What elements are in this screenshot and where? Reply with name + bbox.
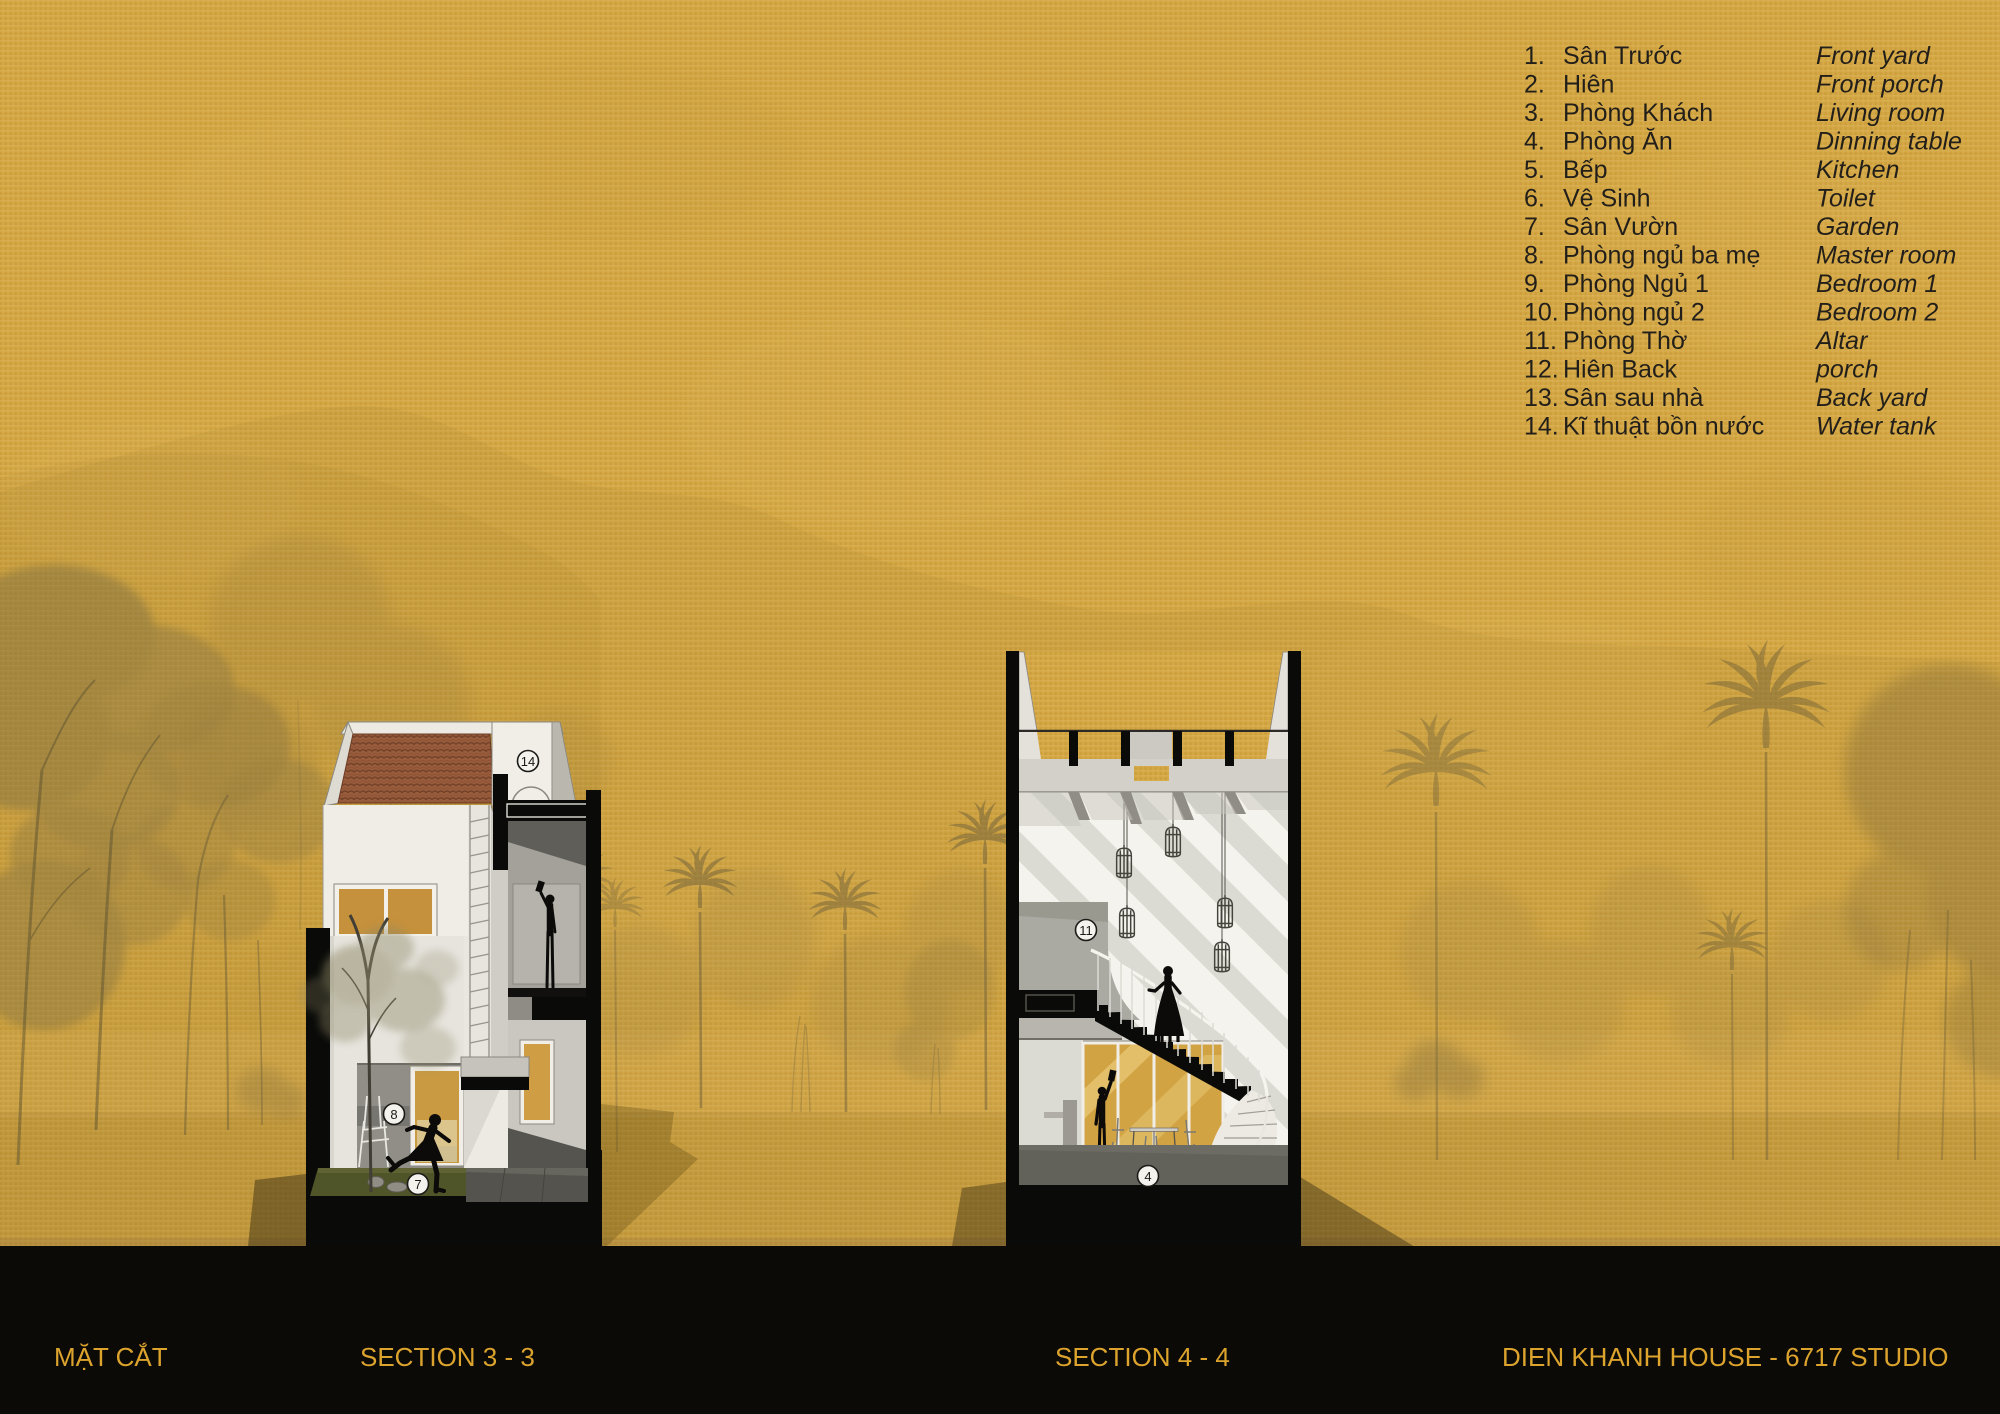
svg-text:7: 7 — [414, 1177, 421, 1192]
svg-text:Altar: Altar — [1814, 327, 1869, 355]
svg-text:Sân Vườn: Sân Vườn — [1563, 213, 1678, 241]
svg-text:Toilet: Toilet — [1816, 185, 1876, 213]
svg-text:Sân sau nhà: Sân sau nhà — [1563, 384, 1703, 412]
svg-text:Dinning table: Dinning table — [1816, 128, 1962, 156]
svg-text:13.: 13. — [1524, 384, 1559, 412]
svg-text:Bếp: Bếp — [1563, 156, 1607, 184]
svg-text:Phòng ngủ 2: Phòng ngủ 2 — [1563, 299, 1705, 327]
svg-text:SECTION 3 - 3: SECTION 3 - 3 — [360, 1342, 535, 1372]
svg-text:Phòng ngủ ba mẹ: Phòng ngủ ba mẹ — [1563, 242, 1760, 270]
svg-text:SECTION 4 - 4: SECTION 4 - 4 — [1055, 1342, 1230, 1372]
svg-text:porch: porch — [1815, 356, 1879, 384]
svg-text:7.: 7. — [1524, 213, 1545, 241]
svg-text:Hiên Back: Hiên Back — [1563, 356, 1677, 384]
svg-text:Bedroom 1: Bedroom 1 — [1816, 270, 1938, 298]
svg-text:Phòng Ngủ 1: Phòng Ngủ 1 — [1563, 270, 1709, 298]
svg-text:Kĩ thuật bồn nước: Kĩ thuật bồn nước — [1563, 413, 1764, 441]
svg-text:11: 11 — [1079, 923, 1093, 938]
svg-text:Kitchen: Kitchen — [1816, 156, 1899, 184]
svg-text:Water tank: Water tank — [1816, 413, 1938, 441]
svg-text:3.: 3. — [1524, 99, 1545, 127]
svg-text:4.: 4. — [1524, 128, 1545, 156]
svg-text:6.: 6. — [1524, 185, 1545, 213]
svg-text:4: 4 — [1144, 1169, 1151, 1184]
svg-text:11.: 11. — [1524, 327, 1557, 355]
svg-text:10.: 10. — [1524, 299, 1559, 327]
svg-text:Master room: Master room — [1816, 242, 1956, 270]
svg-text:DIEN KHANH HOUSE - 6717 STUDIO: DIEN KHANH HOUSE - 6717 STUDIO — [1502, 1342, 1948, 1372]
svg-text:14: 14 — [521, 754, 535, 769]
svg-text:Front yard: Front yard — [1816, 42, 1931, 70]
svg-text:Bedroom 2: Bedroom 2 — [1816, 299, 1938, 327]
svg-text:12.: 12. — [1524, 356, 1559, 384]
svg-text:9.: 9. — [1524, 270, 1545, 298]
svg-text:Phòng Ăn: Phòng Ăn — [1563, 127, 1673, 156]
svg-text:Back yard: Back yard — [1816, 384, 1928, 412]
svg-text:2.: 2. — [1524, 71, 1545, 99]
svg-text:Front porch: Front porch — [1816, 71, 1944, 99]
svg-text:5.: 5. — [1524, 156, 1545, 184]
svg-text:Hiên: Hiên — [1563, 71, 1614, 99]
svg-text:Garden: Garden — [1816, 213, 1899, 241]
svg-text:Phòng Khách: Phòng Khách — [1563, 99, 1713, 127]
svg-text:8.: 8. — [1524, 242, 1545, 270]
svg-text:MẶT CẮT: MẶT CẮT — [54, 1342, 168, 1372]
svg-text:Phòng Thờ: Phòng Thờ — [1563, 327, 1687, 355]
svg-text:Vệ Sinh: Vệ Sinh — [1563, 185, 1651, 213]
svg-text:14.: 14. — [1524, 413, 1559, 441]
svg-text:8: 8 — [390, 1107, 397, 1122]
svg-text:Living room: Living room — [1816, 99, 1945, 127]
svg-text:1.: 1. — [1524, 42, 1545, 70]
svg-text:Sân Trước: Sân Trước — [1563, 42, 1682, 70]
